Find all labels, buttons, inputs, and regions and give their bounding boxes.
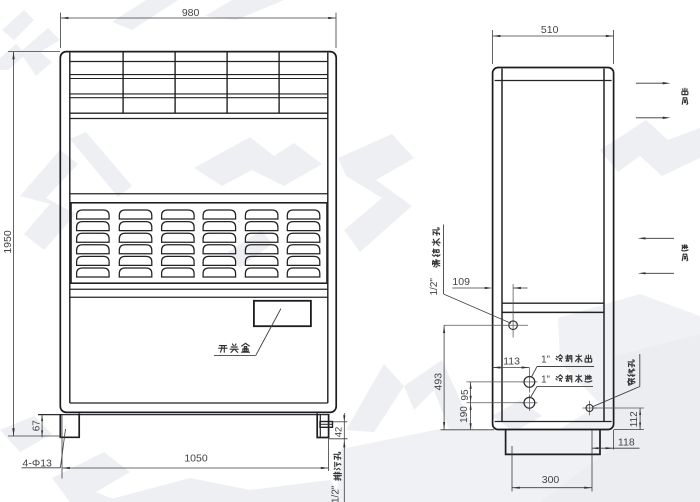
svg-text:300: 300 xyxy=(542,474,560,486)
svg-text:1/2": 1/2" xyxy=(330,485,341,502)
svg-text:95: 95 xyxy=(460,389,471,401)
svg-text:1": 1" xyxy=(541,374,550,385)
svg-text:42: 42 xyxy=(333,427,344,438)
svg-text:493: 493 xyxy=(432,373,444,391)
svg-text:118: 118 xyxy=(618,436,635,448)
svg-text:510: 510 xyxy=(541,24,559,36)
svg-text:980: 980 xyxy=(182,7,200,19)
svg-text:1/2": 1/2" xyxy=(429,278,440,296)
svg-text:1": 1" xyxy=(541,354,550,365)
svg-text:113: 113 xyxy=(503,355,520,367)
svg-text:1050: 1050 xyxy=(184,453,208,465)
svg-text:112: 112 xyxy=(629,411,640,427)
svg-text:67: 67 xyxy=(31,420,42,432)
svg-text:190: 190 xyxy=(459,406,470,423)
svg-text:1950: 1950 xyxy=(2,230,14,254)
svg-text:109: 109 xyxy=(452,276,470,288)
